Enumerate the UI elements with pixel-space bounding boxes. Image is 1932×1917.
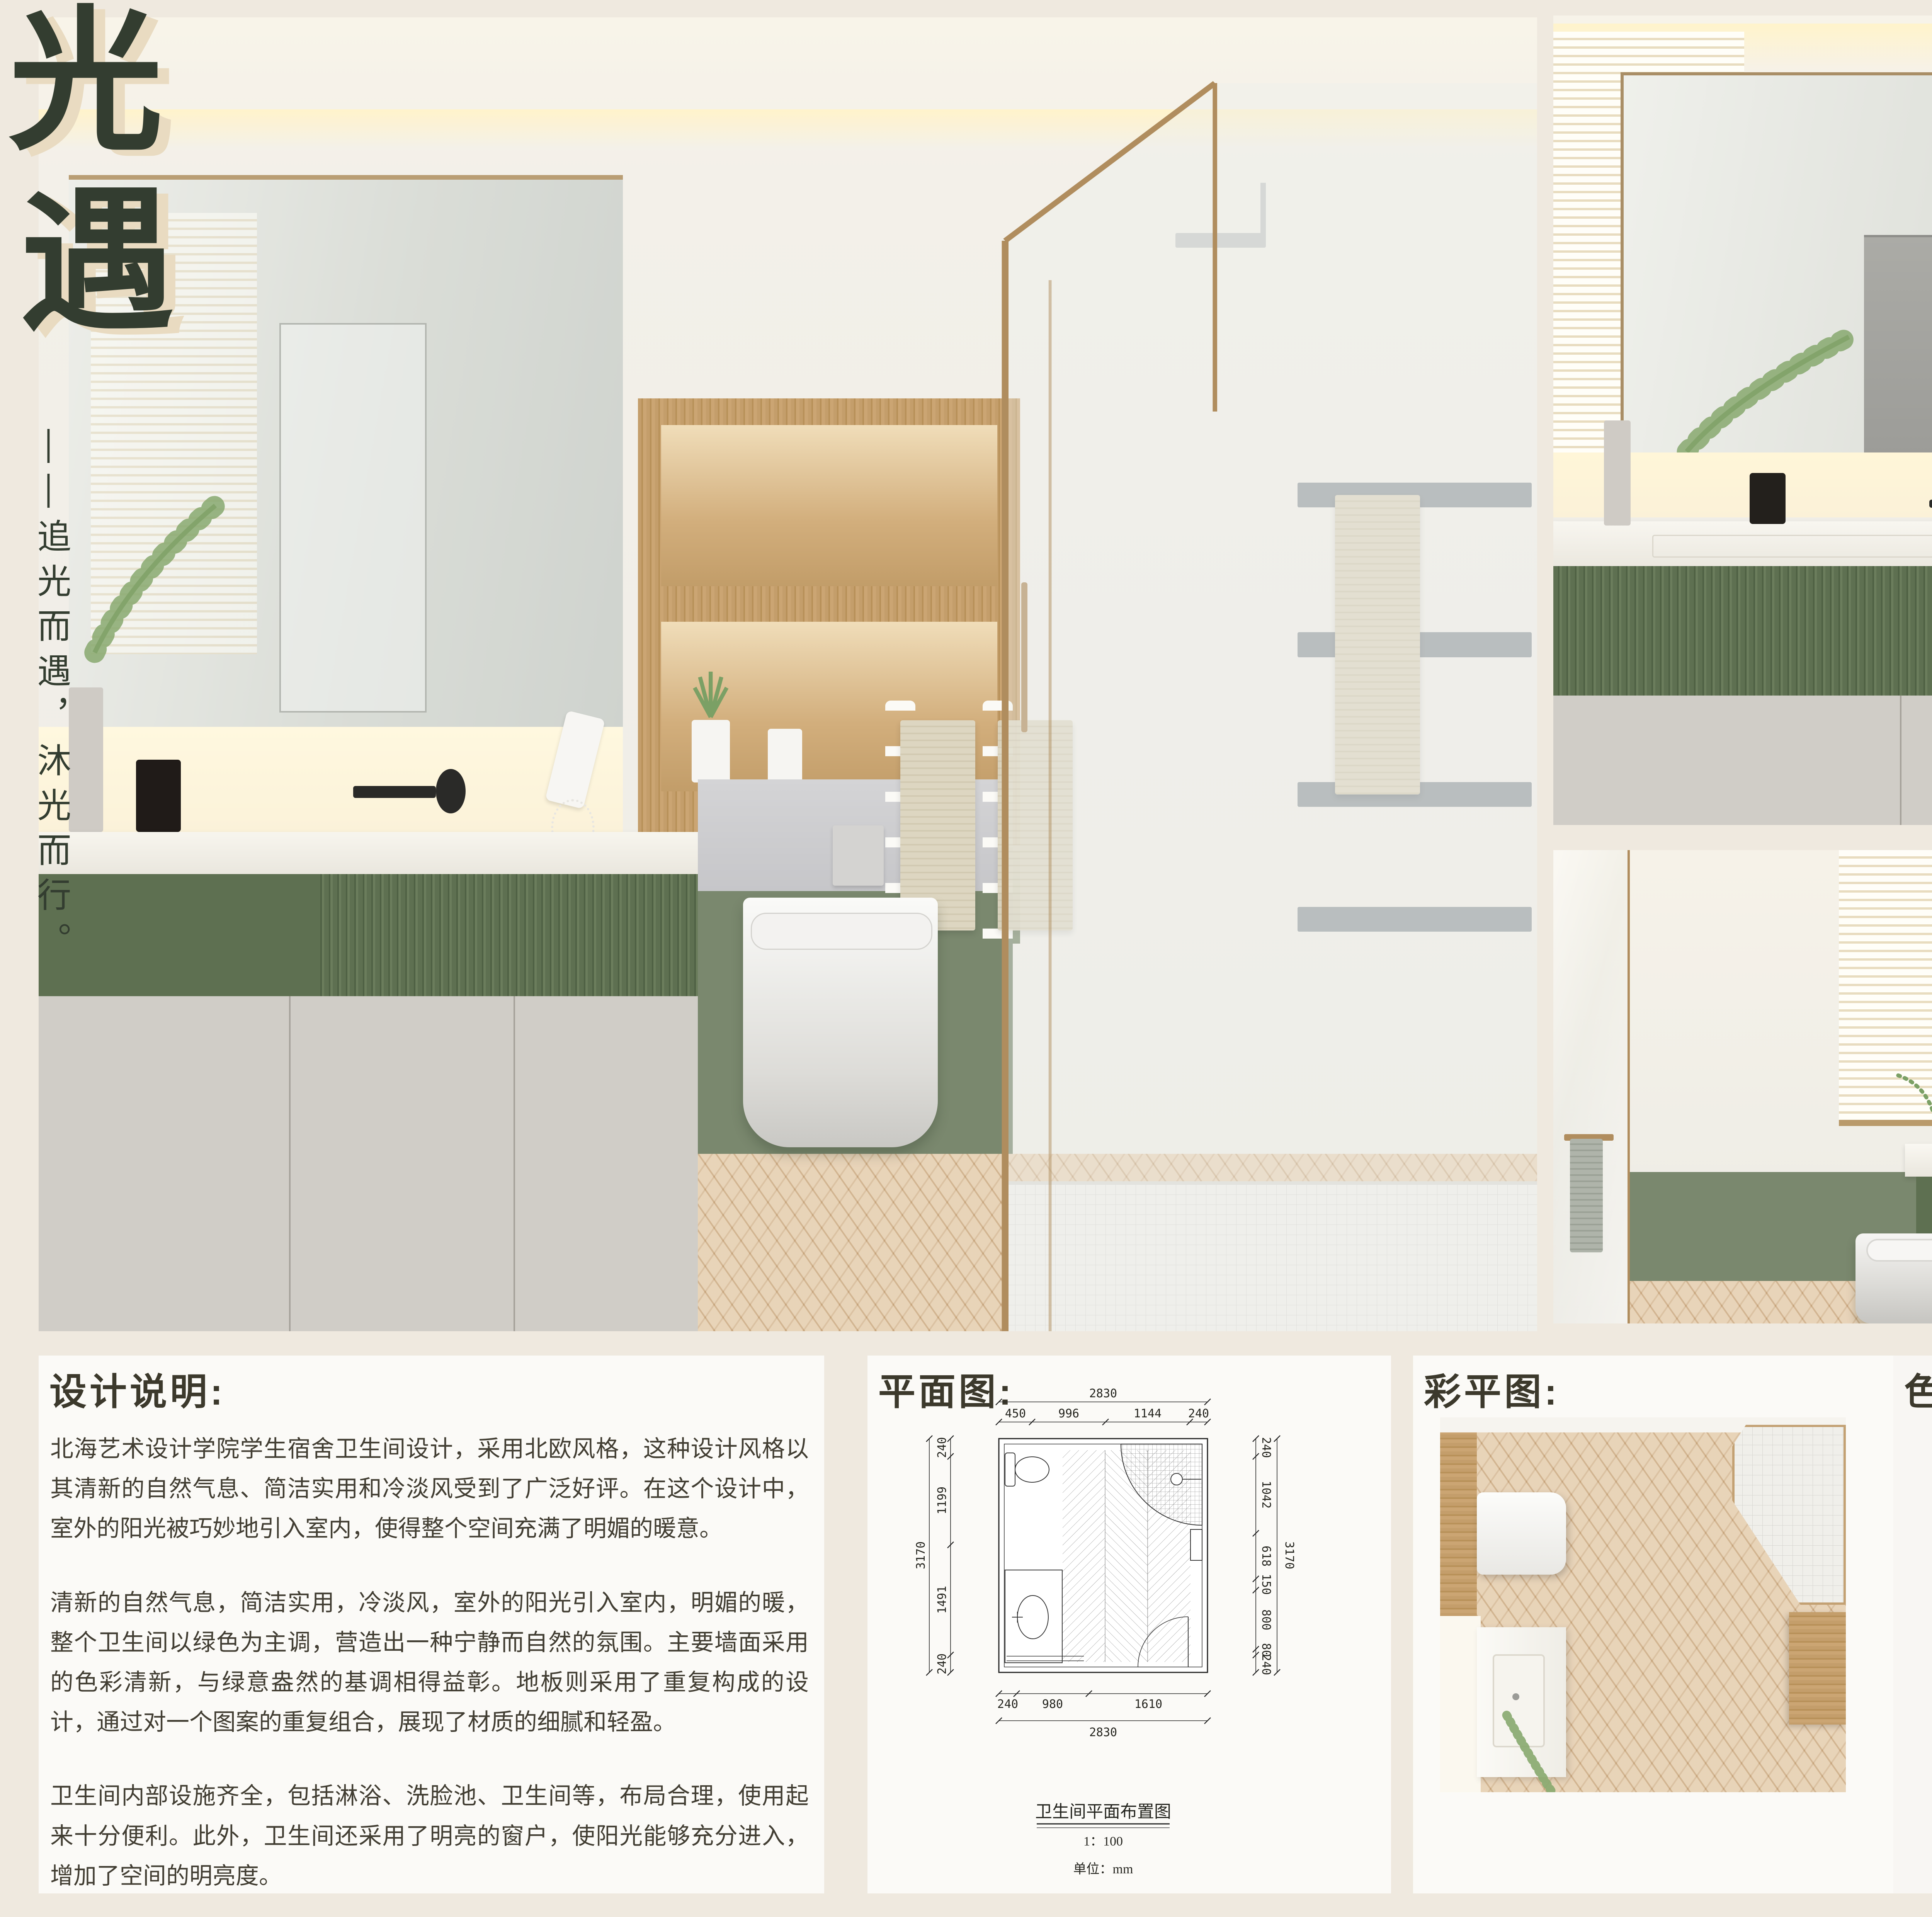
- svg-text:1199: 1199: [935, 1487, 949, 1514]
- mirror-shower-reflection: [279, 323, 427, 713]
- render-vanity-closeup: [1553, 15, 1932, 825]
- plan-drain: [1512, 1693, 1519, 1700]
- shower-towel: [1335, 495, 1420, 794]
- plan-wood-cabinet: [1789, 1612, 1846, 1725]
- svg-text:240: 240: [1259, 1437, 1273, 1458]
- palette-panel: 色彩搭配:: [1893, 1356, 1932, 1893]
- color-plan-panel: 彩平图:: [1413, 1356, 1895, 1893]
- black-wall-faucet-spout: [353, 786, 435, 798]
- design-notes-paragraph-2: 清新的自然气息，简洁实用，冷淡风，室外的阳光引入室内，明媚的暖，整个卫生间以绿色…: [50, 1583, 809, 1742]
- palette-label: 色彩搭配:: [1904, 1362, 1932, 1415]
- render-toilet-view: [1553, 850, 1932, 1323]
- countertop-basin: [1553, 521, 1932, 566]
- svg-text:1042: 1042: [1259, 1481, 1273, 1509]
- vanity-fluted-front: [1553, 566, 1932, 696]
- svg-text:1610: 1610: [1134, 1698, 1162, 1711]
- title-character-yu: 遇: [20, 185, 175, 339]
- svg-text:240: 240: [997, 1698, 1018, 1711]
- floor-plan-panel: 平面图:: [867, 1356, 1391, 1893]
- svg-text:240: 240: [1188, 1407, 1209, 1420]
- shower-glass-panel: [1553, 850, 1630, 1323]
- design-notes-paragraph-3: 卫生间内部设施齐全，包括淋浴、洗脸池、卫生间等，布局合理，使用起来十分便利。此外…: [50, 1776, 809, 1896]
- vanity-doors: [1553, 696, 1932, 825]
- small-sink: [1905, 1144, 1932, 1177]
- fern-plant: [1883, 1049, 1932, 1116]
- svg-text:150: 150: [1259, 1574, 1273, 1595]
- design-notes-body: 北海艺术设计学院学生宿舍卫生间设计，采用北欧风格，这种设计风格以其清新的自然气息…: [50, 1429, 809, 1917]
- shelf-cavity-upper: [661, 425, 997, 586]
- basin-recess: [1652, 535, 1932, 558]
- toilet-paper-holder: [833, 825, 884, 886]
- towel-ladder-bar: [1298, 907, 1532, 932]
- speckled-vase: [1604, 420, 1631, 526]
- rain-shower-head: [1175, 233, 1266, 248]
- floor-plan-drawing: 2830 450 996 1144 240 240 980 1610 2: [867, 1356, 1391, 1893]
- svg-text:1144: 1144: [1134, 1407, 1162, 1420]
- mirror: [1621, 72, 1932, 459]
- svg-text:3170: 3170: [914, 1541, 928, 1569]
- shower-tile-base: [1005, 1181, 1537, 1331]
- svg-text:1491: 1491: [935, 1586, 949, 1614]
- svg-text:3170: 3170: [1282, 1541, 1296, 1569]
- color-plan-label: 彩平图:: [1424, 1362, 1560, 1415]
- plan-left-wall-wood: [1440, 1417, 1477, 1624]
- plan-vanity-wall: [1440, 1616, 1481, 1792]
- door-seam: [289, 996, 291, 1331]
- svg-text:980: 980: [1042, 1698, 1063, 1711]
- toilet-seat: [751, 913, 932, 950]
- poster-board: 光 遇 ——追光而遇，沐光而行。: [0, 0, 1932, 1917]
- svg-text:450: 450: [1005, 1407, 1026, 1420]
- gray-towel: [1570, 1139, 1603, 1252]
- backsplash-light: [39, 727, 623, 832]
- title-character-guang: 光: [9, 5, 163, 159]
- svg-text:240: 240: [935, 1437, 949, 1458]
- fern-plant-reflection: [80, 400, 268, 731]
- design-notes-label: 设计说明:: [49, 1362, 226, 1415]
- svg-text:卫生间平面布置图: 卫生间平面布置图: [1035, 1802, 1171, 1821]
- wall-hung-toilet: [743, 898, 938, 1147]
- svg-text:996: 996: [1058, 1407, 1079, 1420]
- shower-arm: [1260, 183, 1266, 245]
- color-plan-image: [1440, 1417, 1846, 1792]
- render-main-bathroom: [39, 17, 1537, 1331]
- title-tagline-vertical: ——追光而遇，沐光而行。: [27, 429, 76, 1032]
- aloe-plant: [684, 657, 737, 729]
- plant-pot: [692, 720, 730, 782]
- shower-door-handle: [1021, 582, 1028, 732]
- svg-text:800: 800: [1259, 1609, 1273, 1630]
- svg-text:2830: 2830: [1089, 1726, 1117, 1739]
- vanity-drawer-green: [39, 874, 698, 996]
- svg-text:单位：mm: 单位：mm: [1073, 1862, 1133, 1876]
- toilet: [1855, 1233, 1932, 1323]
- design-notes-panel: 设计说明: 北海艺术设计学院学生宿舍卫生间设计，采用北欧风格，这种设计风格以其清…: [39, 1356, 824, 1893]
- svg-text:2830: 2830: [1089, 1387, 1117, 1400]
- door-seam: [1900, 696, 1901, 825]
- succulent-pot: [768, 729, 802, 782]
- black-wall-faucet-spout: [1929, 500, 1932, 508]
- vanity-fluted-front: [316, 874, 698, 996]
- plan-toilet: [1477, 1492, 1566, 1575]
- countertop: [39, 832, 698, 874]
- toilet-seat: [1866, 1239, 1932, 1262]
- black-jar: [136, 760, 181, 832]
- svg-text:618: 618: [1259, 1546, 1273, 1567]
- fern-plant: [1636, 258, 1912, 456]
- black-faucet-valve: [436, 769, 466, 814]
- svg-text:1：100: 1：100: [1083, 1834, 1123, 1849]
- svg-text:240: 240: [935, 1653, 949, 1674]
- shower-area: [1005, 83, 1537, 1331]
- svg-text:240: 240: [1259, 1654, 1273, 1675]
- door-seam: [514, 996, 515, 1331]
- vanity-doors: [39, 996, 698, 1331]
- plan-fern: [1489, 1702, 1578, 1792]
- design-notes-paragraph-1: 北海艺术设计学院学生宿舍卫生间设计，采用北欧风格，这种设计风格以其清新的自然气息…: [50, 1429, 809, 1549]
- black-jar: [1750, 473, 1786, 524]
